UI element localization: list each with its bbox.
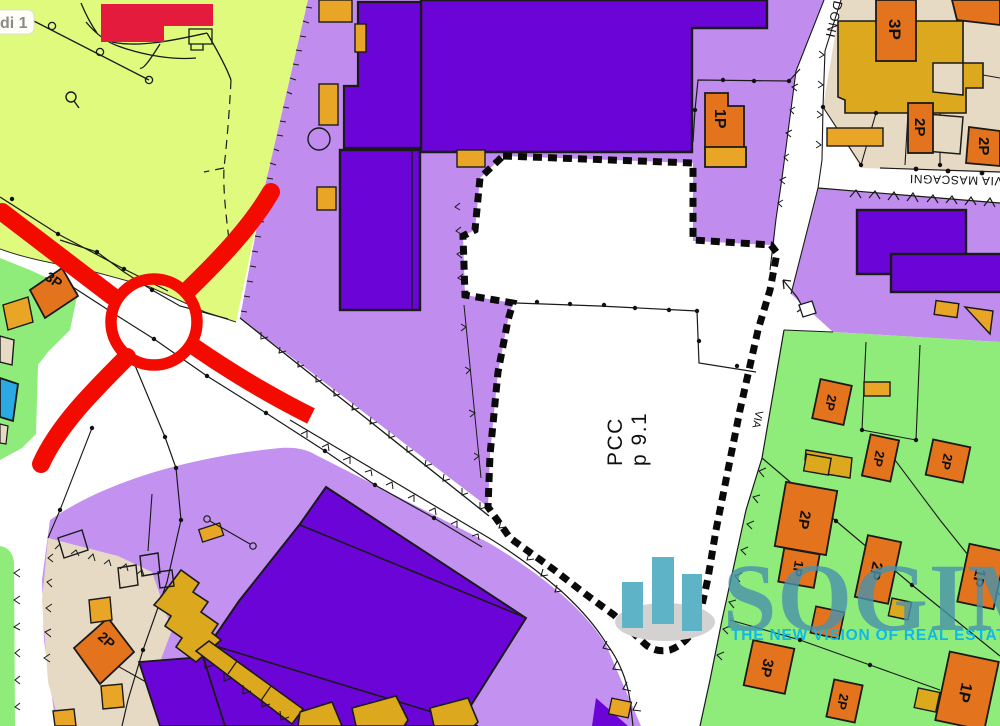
svg-text:p 9.1: p 9.1	[628, 412, 651, 466]
svg-text:1P: 1P	[711, 109, 728, 129]
svg-text:di 1: di 1	[0, 15, 28, 32]
svg-text:3P: 3P	[885, 19, 904, 40]
svg-text:VIA MASCAGNI: VIA MASCAGNI	[909, 172, 1000, 188]
svg-text:2P: 2P	[975, 137, 992, 155]
svg-text:2P: 2P	[794, 509, 814, 530]
svg-text:2P: 2P	[911, 118, 928, 136]
svg-text:THE NEW VISION OF REAL ESTATE: THE NEW VISION OF REAL ESTATE	[731, 627, 1000, 644]
svg-text:PCC: PCC	[604, 417, 627, 466]
